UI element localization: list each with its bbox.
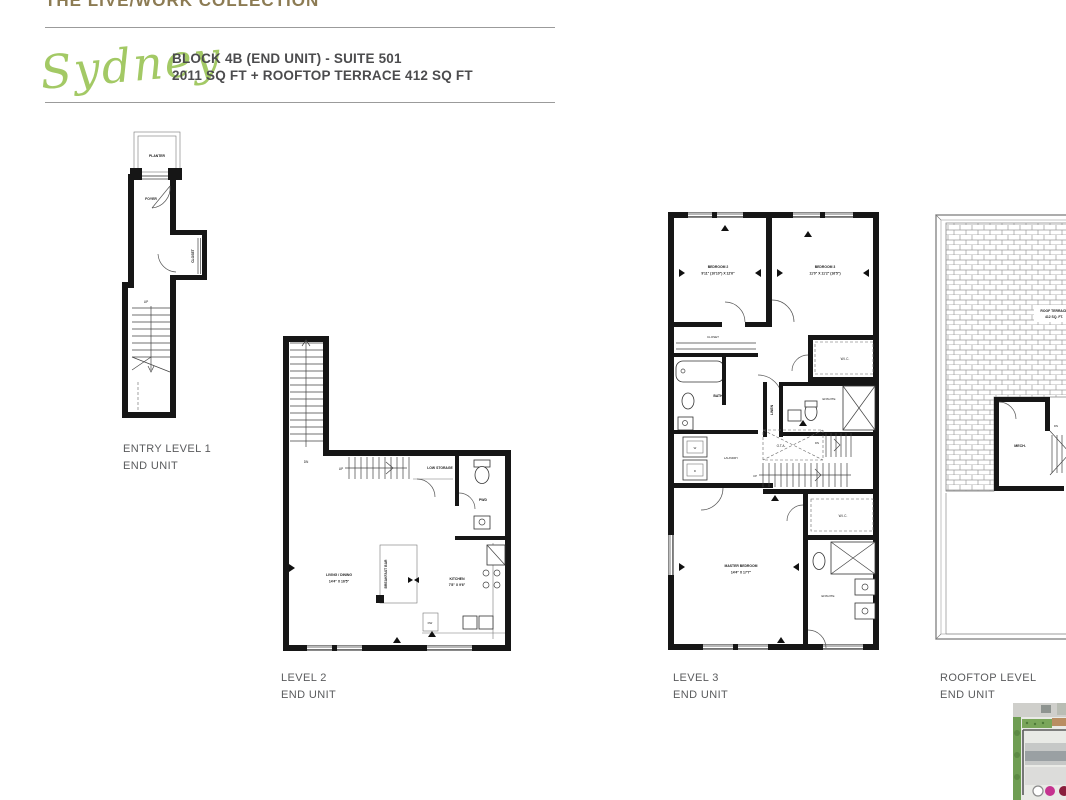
sink-icon — [474, 516, 490, 529]
suite-info: BLOCK 4B (END UNIT) - SUITE 501 2011 SQ … — [172, 50, 473, 84]
bath-toilet-icon — [682, 393, 694, 409]
closet-label: CLOSET — [707, 335, 719, 339]
suite-block-line: BLOCK 4B (END UNIT) - SUITE 501 — [172, 50, 473, 67]
closet-label: CLOSET — [191, 248, 195, 263]
entry-door-sill — [142, 176, 168, 179]
site-key-thumbnail — [1013, 703, 1066, 800]
dn-label: DN — [304, 460, 309, 464]
foyer-label: FOYER — [145, 197, 157, 201]
bathtub-icon — [676, 361, 724, 382]
entry-level-plan: PLANTER FOYER CLOSET UP — [118, 126, 213, 426]
level2-plan: DN UP LOW STORAGE PWD BREAKFAST BAR DW K… — [277, 333, 522, 658]
floorplan-sheet: { "header": { "collection": "THE LIVE/WO… — [0, 0, 1066, 800]
kitchen-sink-icon — [463, 616, 477, 629]
header-rule-bottom — [45, 102, 555, 103]
laundry-label: LAUNDRY — [724, 456, 738, 460]
rooftop-caption: ROOFTOP LEVEL END UNIT — [940, 670, 1037, 703]
mech-label: MECH. — [1014, 444, 1026, 448]
level3-caption: LEVEL 3 END UNIT — [673, 670, 728, 703]
entry-level-caption: ENTRY LEVEL 1 END UNIT — [123, 441, 211, 474]
dw-label: DW — [428, 621, 433, 625]
roof-dn-label: DN — [1054, 424, 1058, 428]
roof-terrace-sqft: 412 SQ. FT. — [1045, 315, 1063, 319]
dn-stairs — [826, 433, 851, 457]
kitchen-dims: 7'8" X 9'6" — [449, 583, 466, 587]
planter-label: PLANTER — [149, 154, 166, 158]
ensuite-master-label: ENSUITE — [821, 594, 834, 598]
bedroom2-dims: 9'11" (10'10") X 12'6" — [701, 272, 735, 276]
linen-label: LINEN — [770, 404, 774, 415]
thumb-badge-white — [1033, 786, 1043, 796]
low-storage-label: LOW STORAGE — [427, 466, 453, 470]
bath-label: BATH — [713, 394, 723, 398]
roof-terrace-label: ROOF TERRACE — [1040, 309, 1066, 313]
wic-master-label: W.I.C. — [839, 514, 848, 518]
bath-sink-icon — [678, 417, 693, 430]
up-label: UP — [339, 467, 343, 471]
ota-label: O.T.A. — [777, 444, 786, 448]
closet-rod — [676, 343, 756, 349]
closet-door-arc — [158, 254, 176, 272]
svg-text:D: D — [694, 469, 696, 473]
kitchen-label: KITCHEN — [449, 577, 465, 581]
master-dims: 14'4" X 17'7" — [731, 571, 752, 575]
toilet-icon — [475, 467, 489, 484]
master-toilet-icon — [813, 553, 825, 570]
bedroom3-label: BEDROOM 3 — [815, 265, 836, 269]
master-sink1-icon — [855, 579, 875, 595]
master-label: MASTER BEDROOM — [725, 564, 758, 568]
svg-text:W: W — [694, 446, 697, 450]
entry-up-label: UP — [144, 300, 148, 304]
living-dining-dims: 14'4" X 16'5" — [329, 580, 350, 584]
pwd-label: PWD — [479, 498, 487, 502]
dn-stairs — [290, 343, 323, 441]
suite-sqft-line: 2011 SQ FT + ROOFTOP TERRACE 412 SQ FT — [172, 67, 473, 84]
stove-icon — [483, 570, 489, 576]
closet-rod — [198, 238, 201, 274]
ensuite-upper-label: ENSUITE — [822, 397, 835, 401]
level2-caption: LEVEL 2 END UNIT — [281, 670, 336, 703]
collection-title: THE LIVE/WORK COLLECTION — [45, 0, 319, 11]
wic-upper-label: W.I.C. — [841, 357, 850, 361]
master-sink2-icon — [855, 603, 875, 619]
thumb-badge-magenta — [1045, 786, 1055, 796]
rooftop-plan: ROOF TERRACE 412 SQ. FT. MECH. DN — [930, 205, 1066, 660]
thumb-green-strip — [1013, 717, 1021, 800]
bedroom3-dims: 11'0" X 11'2" (16'5") — [809, 272, 840, 276]
roof-terrace-paving — [946, 223, 1066, 491]
header-rule-top — [45, 27, 555, 28]
living-dining-label: LIVING / DINING — [326, 573, 352, 577]
bedroom2-label: BEDROOM 2 — [708, 265, 729, 269]
l3-up-label: UP — [753, 474, 757, 478]
l3-dn-label: DN — [815, 441, 819, 445]
level3-plan: BEDROOM 2 9'11" (10'10") X 12'6" BEDROOM… — [663, 205, 888, 660]
breakfast-bar-label: BREAKFAST BAR — [384, 559, 388, 589]
